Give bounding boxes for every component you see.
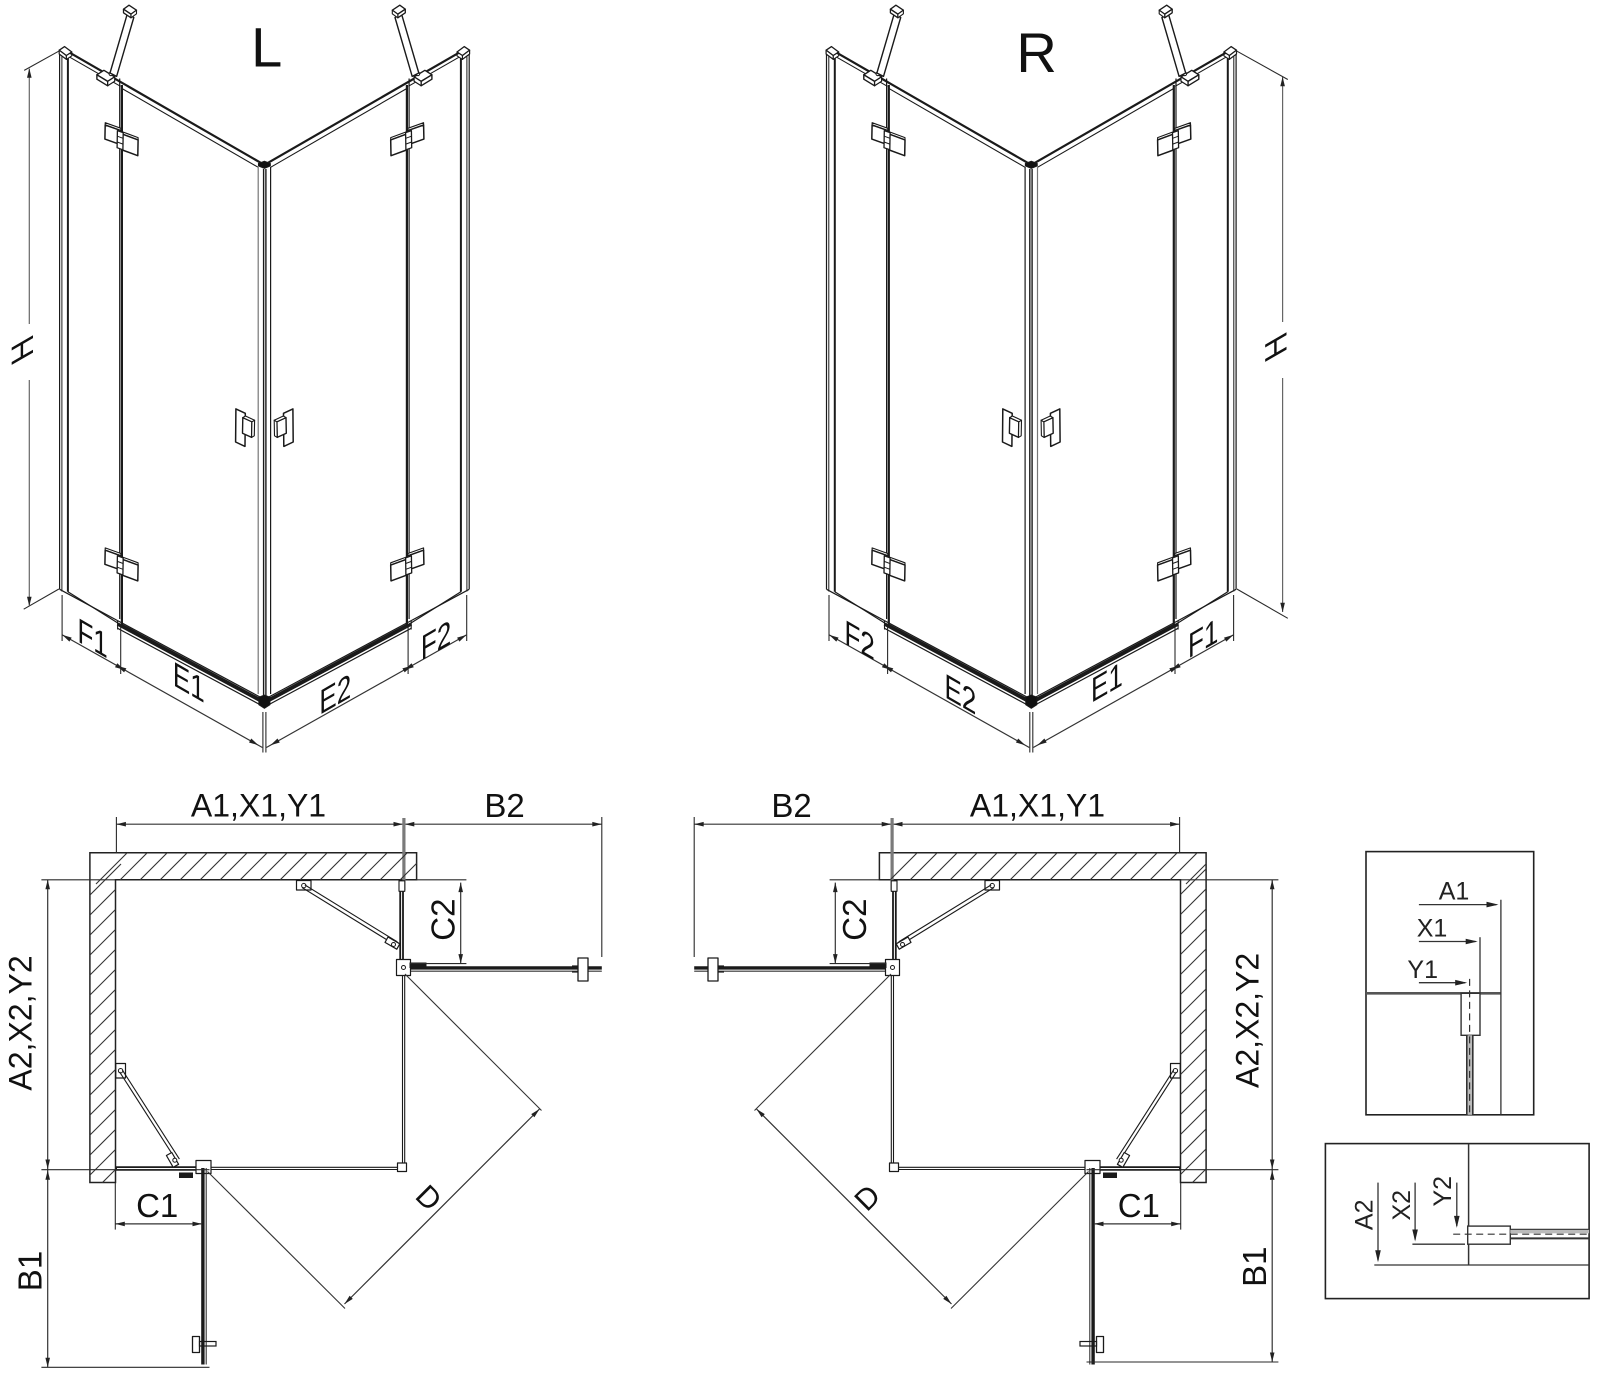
svg-text:R: R — [1016, 21, 1056, 84]
svg-text:B1: B1 — [1236, 1247, 1273, 1287]
svg-text:B2: B2 — [771, 787, 811, 824]
svg-text:B1: B1 — [12, 1251, 49, 1291]
svg-text:X2: X2 — [1388, 1190, 1416, 1221]
svg-text:A1,X1,Y1: A1,X1,Y1 — [191, 788, 326, 824]
svg-text:A2,X2,Y2: A2,X2,Y2 — [1229, 953, 1265, 1088]
svg-text:A2,X2,Y2: A2,X2,Y2 — [3, 955, 39, 1090]
svg-text:C2: C2 — [836, 899, 873, 941]
svg-text:C2: C2 — [424, 899, 461, 941]
svg-text:A1,X1,Y1: A1,X1,Y1 — [970, 788, 1105, 824]
svg-text:X1: X1 — [1417, 914, 1448, 942]
svg-text:A1: A1 — [1439, 877, 1470, 905]
svg-text:A2: A2 — [1351, 1200, 1379, 1231]
svg-text:L: L — [251, 15, 282, 78]
svg-text:B2: B2 — [484, 787, 524, 824]
svg-text:Y2: Y2 — [1429, 1176, 1457, 1207]
svg-text:C1: C1 — [1118, 1187, 1160, 1224]
svg-text:Y1: Y1 — [1407, 956, 1438, 984]
svg-text:C1: C1 — [136, 1187, 178, 1224]
